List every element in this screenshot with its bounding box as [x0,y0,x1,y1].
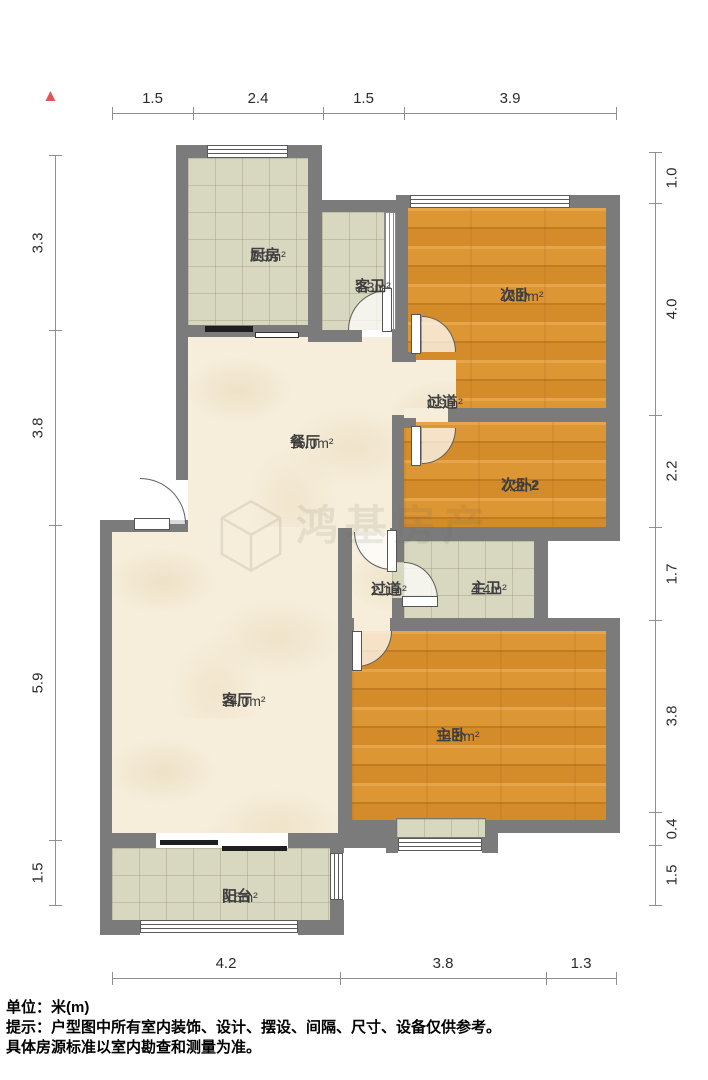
wall [100,920,140,935]
wall [606,195,620,540]
floorplan-canvas: ▲ 厨房7.3m²客卫3.3m²次卧13.0m²过道0.9m²餐厅15.0m²次… [0,0,708,1080]
dimension-label-top: 3.9 [500,90,521,107]
window [207,145,288,158]
dimension-label-top: 1.5 [353,90,374,107]
wall [176,145,209,158]
dimension-tick [649,415,662,416]
window [140,920,298,933]
wall [396,195,410,208]
entry-door-leaf [134,518,170,530]
dimension-line-right [655,152,656,905]
dimension-label-bottom: 1.3 [571,955,592,972]
room-area: 13.0m² [500,288,544,306]
wall [330,845,344,853]
dimension-tick [323,107,324,120]
dimension-tick [404,107,405,120]
sliding-door [222,846,287,851]
wall [390,618,620,631]
dimension-label-right: 2.2 [664,461,681,482]
dimension-line-left [55,155,56,905]
dimension-label-right: 0.4 [664,818,681,839]
wall [308,145,322,337]
dimension-tick [649,152,662,153]
dimension-tick [616,972,617,985]
room-area: 7.2m² [501,478,537,496]
room-area: 3.3m² [355,279,391,297]
dimension-tick [49,525,62,526]
window [410,195,570,208]
dimension-label-left: 3.8 [30,417,47,438]
dimension-tick [649,845,662,846]
footer-notes: 单位：米(m) 提示：户型图中所有室内装饰、设计、摆设、间隔、尺寸、设备仅供参考… [6,998,501,1058]
wall [606,618,620,833]
sliding-door [255,332,299,338]
dimension-tick [546,972,547,985]
dimension-tick [649,203,662,204]
floorplan: 厨房7.3m²客卫3.3m²次卧13.0m²过道0.9m²餐厅15.0m²次卧2… [0,0,708,1080]
window [330,853,343,900]
dimension-tick [616,107,617,120]
wall [486,820,620,833]
dimension-label-top: 1.5 [142,90,163,107]
floor-living-room [112,528,338,833]
room-area: 7.3m² [250,248,286,266]
floor-master-bedroom [352,631,606,820]
wall [338,820,398,833]
dimension-label-left: 1.5 [30,862,47,883]
room-area: 24.0m² [222,693,266,711]
floor-kitchen [188,158,308,325]
wall [308,200,400,212]
floor-balcony [112,848,330,920]
corridor-door-leaf [387,530,397,572]
disclaimer-line-1: 提示：户型图中所有室内装饰、设计、摆设、间隔、尺寸、设备仅供参考。 [6,1018,501,1038]
room-area: 2.1m² [371,582,407,600]
dimension-label-right: 1.0 [664,167,681,188]
wall [392,415,404,528]
wall [338,618,354,631]
disclaimer-line-2: 具体房源标准以室内勘查和测量为准。 [6,1038,501,1058]
wall [338,528,352,833]
bedroom-second-2-door-leaf [411,426,421,466]
dimension-tick [49,905,62,906]
wall [308,330,362,342]
wall [100,520,112,933]
sliding-door [205,326,253,332]
room-area: 5.5m² [222,889,258,907]
dimension-label-bottom: 4.2 [216,955,237,972]
wall [448,408,606,422]
dimension-tick [49,155,62,156]
room-area: 15.0m² [290,435,334,453]
dimension-label-left: 3.3 [30,232,47,253]
dimension-label-right: 3.8 [664,706,681,727]
wall [176,145,188,480]
dimension-tick [112,107,113,120]
dimension-tick [649,620,662,621]
sliding-door [160,840,218,845]
unit-note: 单位：米(m) [6,998,501,1018]
dimension-tick [649,527,662,528]
floor-dining-room [188,337,392,528]
bedroom-second-door-leaf [411,314,421,354]
dimension-label-right: 1.5 [664,865,681,886]
wall [330,900,344,935]
dimension-tick [649,812,662,813]
window [398,838,482,851]
dimension-label-right: 1.7 [664,563,681,584]
dimension-tick [49,330,62,331]
dimension-line-top [112,113,616,114]
dimension-label-right: 4.0 [664,299,681,320]
master-bedroom-door-leaf [352,631,362,671]
wall [392,527,620,541]
dimension-label-bottom: 3.8 [433,955,454,972]
dimension-tick [340,972,341,985]
room-area: 4.4m² [471,581,507,599]
dimension-label-top: 2.4 [248,90,269,107]
dimension-tick [112,972,113,985]
bay-window-sill [396,818,486,838]
dimension-tick [193,107,194,120]
dimension-label-left: 5.9 [30,672,47,693]
dimension-line-bottom [112,978,616,979]
room-area: 0.9m² [427,395,463,413]
master-bathroom-door-leaf [402,596,438,607]
room-area: 14.5m² [436,728,480,746]
dimension-tick [649,905,662,906]
dimension-tick [49,840,62,841]
